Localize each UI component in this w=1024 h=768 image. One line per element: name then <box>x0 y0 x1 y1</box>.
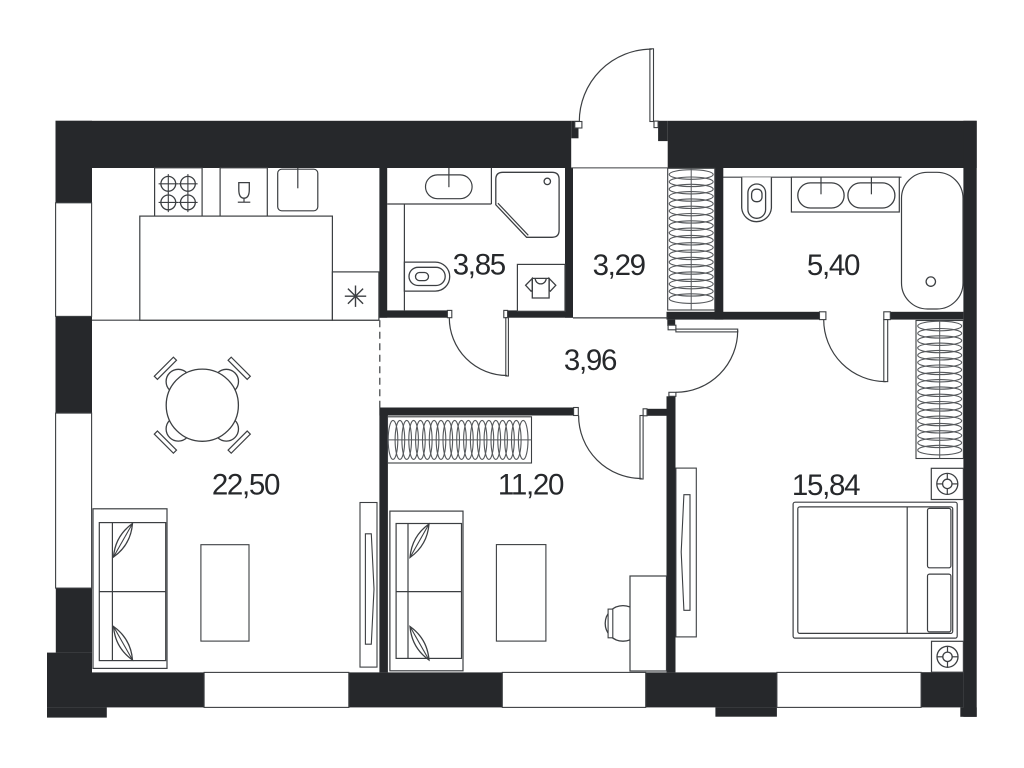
svg-text:3,29: 3,29 <box>593 249 646 282</box>
svg-text:22,50: 22,50 <box>212 469 280 502</box>
svg-text:3,85: 3,85 <box>453 249 506 282</box>
svg-text:5,40: 5,40 <box>807 249 860 282</box>
svg-text:15,84: 15,84 <box>792 469 860 502</box>
svg-text:11,20: 11,20 <box>498 469 564 502</box>
svg-text:3,96: 3,96 <box>564 344 617 377</box>
